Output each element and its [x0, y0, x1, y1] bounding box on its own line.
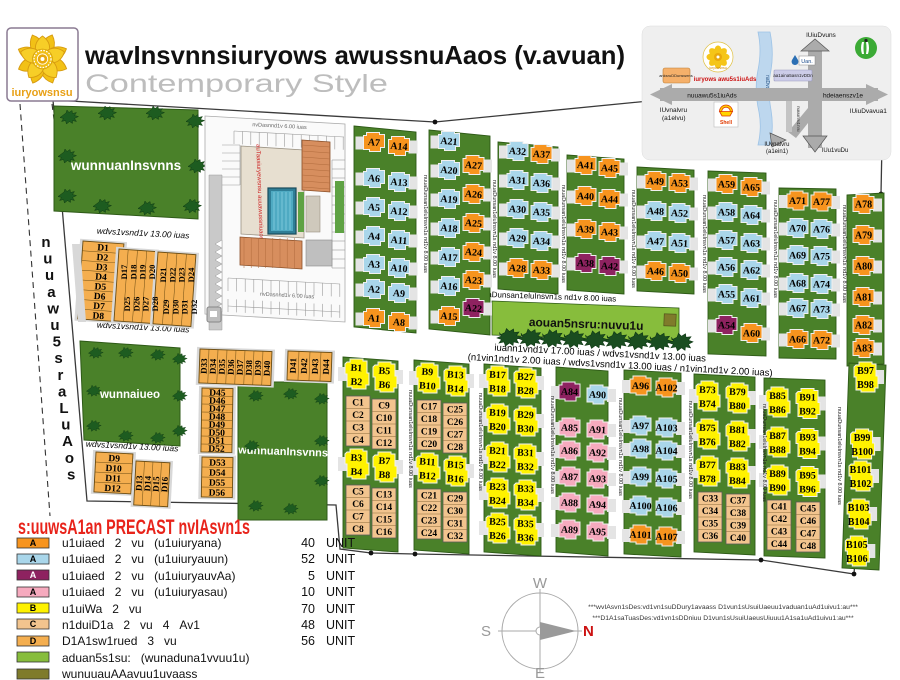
- svg-text:wunnaiueo: wunnaiueo: [99, 389, 160, 401]
- svg-text:u1uiaed 2 vu (u1uiuryauv: u1uiaed 2 vu (u1uiuryauvAa): [62, 569, 235, 583]
- svg-text:C6: C6: [352, 500, 364, 510]
- svg-text:D12: D12: [104, 484, 121, 495]
- svg-text:5: 5: [53, 334, 61, 351]
- svg-text:A103: A103: [655, 423, 678, 435]
- svg-text:B21: B21: [489, 446, 506, 458]
- svg-text:D54: D54: [209, 469, 226, 479]
- svg-text:A30: A30: [508, 204, 526, 216]
- svg-text:nuuaDunsan1eluInsvn1s nd1v 8.0: nuuaDunsan1eluInsvn1s nd1v 8.00 iuas: [477, 393, 483, 491]
- svg-text:C47: C47: [800, 530, 817, 540]
- svg-text:C25: C25: [447, 406, 464, 416]
- svg-text:A21: A21: [440, 136, 458, 148]
- svg-text:C2: C2: [352, 411, 364, 421]
- svg-text:52: 52: [301, 552, 315, 566]
- svg-text:C4: C4: [352, 436, 364, 446]
- svg-text:A85: A85: [561, 423, 579, 435]
- svg-text:N: N: [583, 623, 594, 640]
- svg-text:B31: B31: [517, 448, 534, 460]
- svg-text:C31: C31: [447, 520, 464, 530]
- svg-text:A10: A10: [390, 263, 408, 275]
- svg-text:B83: B83: [729, 462, 746, 474]
- svg-text:A8: A8: [392, 317, 405, 329]
- svg-text:UNIT: UNIT: [326, 634, 356, 648]
- svg-text:D42: D42: [299, 358, 310, 374]
- svg-text:A89: A89: [561, 525, 579, 537]
- svg-text:A13: A13: [390, 177, 408, 189]
- svg-text:A75: A75: [813, 251, 830, 262]
- svg-text:A49: A49: [647, 176, 665, 188]
- svg-text:B8: B8: [378, 470, 390, 482]
- svg-text:B1: B1: [350, 363, 362, 375]
- svg-text:B88: B88: [769, 445, 786, 456]
- svg-text:B9: B9: [421, 367, 433, 379]
- svg-text:A47: A47: [647, 236, 665, 248]
- svg-text:A68: A68: [789, 278, 806, 289]
- svg-text:B73: B73: [699, 385, 716, 397]
- svg-text:A87: A87: [561, 472, 579, 484]
- svg-text:B93: B93: [799, 432, 816, 443]
- svg-text:B97: B97: [857, 366, 874, 377]
- svg-text:B6: B6: [378, 380, 390, 392]
- svg-text:A4: A4: [367, 231, 380, 243]
- svg-text:C7: C7: [352, 513, 364, 523]
- svg-text:B4: B4: [350, 467, 362, 479]
- svg-text:B10: B10: [419, 380, 436, 392]
- svg-text:B25: B25: [489, 517, 506, 529]
- svg-text:B78: B78: [699, 474, 716, 486]
- svg-text:C44: C44: [771, 540, 788, 550]
- svg-text:W: W: [533, 575, 548, 592]
- svg-text:A2: A2: [367, 284, 380, 296]
- svg-text:A33: A33: [532, 265, 550, 277]
- svg-text:L: L: [59, 400, 68, 417]
- svg-text:D32: D32: [189, 300, 199, 315]
- svg-text:B22: B22: [489, 460, 506, 472]
- svg-text:B100: B100: [851, 447, 873, 458]
- svg-text:nuuaDunsan1eluInsvn1s nd1v 8.0: nuuaDunsan1eluInsvn1s nd1v 8.00 iuas: [836, 407, 842, 505]
- svg-text:UNIT: UNIT: [326, 585, 356, 599]
- svg-text:B35: B35: [517, 519, 534, 531]
- svg-text:B23: B23: [489, 482, 506, 494]
- svg-text:A9: A9: [392, 288, 405, 300]
- svg-text:B96: B96: [799, 484, 816, 495]
- svg-text:A22: A22: [464, 303, 482, 315]
- svg-text:B76: B76: [699, 437, 716, 449]
- svg-text:B36: B36: [517, 533, 534, 545]
- svg-text:70: 70: [301, 602, 315, 616]
- svg-text:u1uiaed 2 vu (u1uiuryasa: u1uiaed 2 vu (u1uiuryasau): [62, 585, 227, 599]
- svg-text:D43: D43: [310, 358, 321, 374]
- svg-text:B32: B32: [517, 462, 534, 474]
- svg-text:B94: B94: [799, 446, 816, 457]
- svg-text:C38: C38: [730, 509, 747, 519]
- svg-text:A69: A69: [789, 250, 806, 261]
- svg-text:B16: B16: [447, 473, 464, 485]
- svg-text:D1A1sw1rued 3 vu: D1A1sw1rued 3 vu: [62, 634, 177, 648]
- svg-text:C37: C37: [730, 497, 747, 507]
- svg-text:nuuaDunsan1eluInsvn1s nd1v 8.0: nuuaDunsan1eluInsvn1s nd1v 8.00 iuas: [422, 175, 428, 273]
- svg-text:C30: C30: [447, 507, 464, 517]
- svg-text:***D1A1saTuasDes:vd1vn1sDDniuu: ***D1A1saTuasDes:vd1vn1sDDniuu D1vun1sUs…: [592, 615, 854, 622]
- svg-text:C33: C33: [702, 495, 719, 505]
- svg-text:D40: D40: [262, 360, 273, 376]
- svg-text:A: A: [30, 538, 37, 548]
- svg-text:UNIT: UNIT: [326, 536, 356, 550]
- svg-text:D9: D9: [108, 454, 120, 465]
- svg-text:C39: C39: [730, 522, 747, 532]
- svg-text:UNIT: UNIT: [326, 618, 356, 632]
- svg-text:A74: A74: [813, 279, 830, 290]
- svg-text:A6: A6: [367, 173, 380, 185]
- svg-text:A17: A17: [440, 252, 458, 264]
- svg-text:u: u: [61, 417, 70, 434]
- svg-text:B82: B82: [729, 439, 746, 451]
- svg-text:E: E: [535, 665, 545, 680]
- svg-text:B2: B2: [350, 377, 362, 389]
- svg-text:A: A: [30, 587, 37, 597]
- svg-text:iuryowsnsu: iuryowsnsu: [11, 87, 72, 99]
- svg-text:A: A: [62, 433, 73, 450]
- svg-text:anksruDDunswens: anksruDDunswens: [659, 73, 693, 78]
- svg-text:A14: A14: [390, 141, 408, 153]
- svg-text:C43: C43: [771, 528, 788, 538]
- svg-text:A96: A96: [632, 381, 650, 393]
- svg-text:A77: A77: [813, 197, 830, 208]
- svg-text:nuuaDunsan1eluInsvn1s nd1v 8.0: nuuaDunsan1eluInsvn1s nd1v 8.00 iuas: [761, 404, 767, 502]
- svg-text:A99: A99: [632, 472, 650, 484]
- svg-text:A107: A107: [655, 532, 678, 544]
- svg-text:A105: A105: [655, 474, 678, 486]
- svg-text:A12: A12: [390, 206, 408, 218]
- svg-text:A: A: [30, 570, 37, 580]
- svg-text:nuuaDunsan1eluInsvn1s nd1v 8.0: nuuaDunsan1eluInsvn1s nd1v 8.00 iuas: [701, 195, 707, 293]
- svg-text:A15: A15: [440, 311, 458, 323]
- svg-text:B101: B101: [850, 465, 872, 476]
- svg-text:nuuaDunsan1eluInsvn1s nd1v 8.0: nuuaDunsan1eluInsvn1s nd1v 8.00 iuas: [772, 200, 778, 298]
- svg-text:A20: A20: [440, 165, 458, 177]
- svg-text:lUiuDvavua1: lUiuDvavua1: [850, 108, 887, 115]
- svg-text:D28: D28: [150, 297, 160, 312]
- svg-text:A26: A26: [464, 189, 482, 201]
- svg-text:Uan.: Uan.: [801, 59, 813, 65]
- svg-text:A98: A98: [632, 444, 650, 456]
- svg-text:A90: A90: [589, 390, 607, 402]
- svg-text:C1: C1: [352, 399, 364, 409]
- svg-text:C45: C45: [800, 505, 817, 515]
- svg-text:B81: B81: [729, 425, 746, 437]
- svg-text:B18: B18: [489, 384, 506, 396]
- svg-text:nuuaDunsan1eluInsvn1s nd1v 8.0: nuuaDunsan1eluInsvn1s nd1v 8.00 iuas: [560, 185, 566, 283]
- svg-text:u: u: [43, 251, 52, 268]
- svg-text:B19: B19: [489, 408, 506, 420]
- svg-text:nuuaDunsan1eluInsvn1s nd1v 8.0: nuuaDunsan1eluInsvn1s nd1v 8.00 iuas: [407, 390, 413, 488]
- svg-text:nuuaDunsan1eluInsvn1s nd1v 8.0: nuuaDunsan1eluInsvn1s nd1v 8.00 iuas: [841, 205, 847, 303]
- svg-text:C36: C36: [702, 532, 719, 542]
- svg-text:Shell: Shell: [720, 120, 733, 126]
- svg-text:B90: B90: [769, 483, 786, 494]
- svg-text:hdeiaenszv1e: hdeiaenszv1e: [823, 93, 863, 100]
- svg-text:s: s: [67, 466, 75, 483]
- svg-text:UNIT: UNIT: [326, 552, 356, 566]
- svg-text:A37: A37: [532, 149, 550, 161]
- svg-text:A27: A27: [464, 160, 482, 172]
- svg-text:C35: C35: [702, 520, 719, 530]
- svg-text:B11: B11: [419, 456, 436, 468]
- svg-text:A93: A93: [589, 474, 607, 486]
- svg-text:B79: B79: [729, 387, 746, 399]
- svg-text:nuuunru1nru: nuuunru1nru: [796, 106, 801, 132]
- svg-text:A95: A95: [589, 527, 607, 539]
- svg-text:B91: B91: [799, 392, 816, 403]
- svg-text:B104: B104: [848, 517, 870, 528]
- svg-text:5: 5: [308, 569, 315, 583]
- svg-text:A71: A71: [789, 196, 806, 207]
- svg-text:D44: D44: [321, 358, 332, 374]
- svg-text:48: 48: [301, 618, 315, 632]
- svg-text:A53: A53: [671, 178, 689, 190]
- svg-text:aduan5s1su: (wunaduna1vvuu1u: aduan5s1su: (wunaduna1vvuu1u): [62, 651, 249, 665]
- svg-text:A63: A63: [743, 238, 761, 250]
- svg-text:A36: A36: [532, 178, 550, 190]
- svg-text:D: D: [30, 636, 37, 646]
- svg-text:B87: B87: [769, 431, 786, 442]
- svg-text:B33: B33: [517, 484, 534, 496]
- svg-text:C14: C14: [376, 503, 393, 513]
- svg-text:A39: A39: [577, 224, 595, 236]
- svg-text:C28: C28: [447, 443, 464, 453]
- svg-text:A51: A51: [671, 238, 689, 250]
- svg-text:C12: C12: [376, 439, 393, 449]
- svg-text:B12: B12: [419, 470, 436, 482]
- svg-text:nuuaDunsan1eluInsvn1s nd1v 8.0: nuuaDunsan1eluInsvn1s nd1v 8.00 iuas: [491, 180, 497, 278]
- svg-text:C9: C9: [378, 402, 390, 412]
- svg-text:C22: C22: [421, 504, 438, 514]
- svg-text:B95: B95: [799, 470, 816, 481]
- svg-text:B: B: [30, 603, 37, 613]
- svg-text:C13: C13: [376, 491, 393, 501]
- svg-text:A106: A106: [655, 503, 678, 515]
- svg-text:B103: B103: [848, 503, 870, 514]
- svg-text:A40: A40: [577, 191, 595, 203]
- svg-text:C24: C24: [421, 529, 438, 539]
- svg-text:iuryowsnsu: iuryowsnsu: [709, 66, 727, 70]
- svg-text:A54: A54: [718, 320, 736, 332]
- svg-text:B27: B27: [517, 372, 534, 384]
- svg-text:A86: A86: [561, 446, 579, 458]
- svg-text:A42: A42: [601, 261, 619, 273]
- svg-text:B28: B28: [517, 386, 534, 398]
- svg-text:A24: A24: [464, 247, 482, 259]
- svg-text:C8: C8: [352, 525, 364, 535]
- svg-text:aa1aina5asn1vDDn: aa1aina5asn1vDDn: [773, 73, 813, 78]
- svg-text:D56: D56: [209, 489, 226, 499]
- svg-text:A46: A46: [647, 266, 665, 278]
- svg-text:C48: C48: [800, 542, 817, 552]
- svg-text:C16: C16: [376, 528, 393, 538]
- svg-text:A82: A82: [855, 321, 872, 332]
- svg-text:A50: A50: [671, 268, 689, 280]
- svg-text:A101: A101: [629, 530, 652, 542]
- svg-text:A76: A76: [813, 224, 830, 235]
- svg-text:C41: C41: [771, 503, 788, 513]
- svg-text:A67: A67: [789, 303, 806, 314]
- svg-text:10: 10: [301, 585, 315, 599]
- svg-text:u1uiaed 2 vu (u1uiuryauu: u1uiaed 2 vu (u1uiuryauun): [62, 552, 228, 566]
- svg-text:B24: B24: [489, 496, 506, 508]
- svg-text:B98: B98: [857, 380, 874, 391]
- svg-text:(a1ein1): (a1ein1): [766, 149, 788, 155]
- svg-text:nuuawu5s1iuAds: nuuawu5s1iuAds: [687, 93, 737, 100]
- svg-text:S: S: [481, 623, 491, 640]
- svg-text:A29: A29: [508, 233, 526, 245]
- svg-text:lUvnalvru: lUvnalvru: [660, 107, 687, 114]
- svg-text:D16: D16: [159, 476, 170, 493]
- svg-text:D41: D41: [288, 357, 299, 373]
- svg-text:A64: A64: [743, 210, 761, 222]
- svg-text:B92: B92: [799, 406, 816, 417]
- svg-text:A23: A23: [464, 275, 482, 287]
- svg-text:C3: C3: [352, 424, 364, 434]
- svg-text:r: r: [57, 367, 63, 384]
- svg-text:A59: A59: [718, 179, 736, 191]
- svg-text:D53: D53: [209, 459, 226, 469]
- svg-text:lUvnalvru: lUvnalvru: [764, 142, 789, 148]
- svg-text:A28: A28: [508, 263, 526, 275]
- svg-text:A80: A80: [855, 262, 872, 273]
- svg-text:A78: A78: [855, 200, 872, 211]
- svg-text:A65: A65: [743, 182, 761, 194]
- svg-text:B75: B75: [699, 423, 716, 435]
- svg-text:a: a: [47, 284, 56, 301]
- svg-text:B84: B84: [729, 476, 746, 488]
- svg-text:C29: C29: [447, 495, 464, 505]
- svg-text:A25: A25: [464, 218, 482, 230]
- svg-text:UNIT: UNIT: [326, 569, 356, 583]
- svg-text:D52: D52: [208, 445, 225, 455]
- svg-text:nuuaDunsan1eluInsvn1s nd1v 8.0: nuuaDunsan1eluInsvn1s nd1v 8.00 iuas: [630, 190, 636, 288]
- svg-text:A62: A62: [743, 265, 761, 277]
- svg-text:A92: A92: [589, 448, 607, 460]
- svg-text:n1duiD1a 2 vu 4 Av1: n1duiD1a 2 vu 4 Av1: [62, 618, 200, 632]
- svg-text:C11: C11: [376, 427, 392, 437]
- svg-text:iuryows awu5s1iuAds: iuryows awu5s1iuAds: [694, 77, 757, 83]
- svg-text:wavInsvnnsiuryows awussnuAaos: wavInsvnnsiuryows awussnuAaos (v.avuan): [84, 40, 625, 70]
- svg-text:A38: A38: [577, 258, 595, 270]
- svg-text:D20: D20: [147, 265, 157, 280]
- svg-text:D55: D55: [209, 479, 226, 489]
- svg-text:A84: A84: [561, 387, 579, 399]
- svg-text:u: u: [50, 317, 59, 334]
- svg-text:B26: B26: [489, 531, 506, 543]
- svg-text:B86: B86: [769, 405, 786, 416]
- svg-text:B13: B13: [447, 369, 464, 381]
- svg-text:A94: A94: [589, 500, 607, 512]
- svg-text:B80: B80: [729, 401, 746, 413]
- svg-text:C27: C27: [447, 431, 464, 441]
- svg-text:A45: A45: [601, 163, 619, 175]
- svg-text:C21: C21: [421, 492, 438, 502]
- svg-text:A3: A3: [367, 259, 380, 271]
- svg-text:B15: B15: [447, 459, 464, 471]
- svg-text:B99: B99: [854, 433, 871, 444]
- svg-text:C10: C10: [376, 414, 393, 424]
- svg-text:B29: B29: [517, 410, 534, 422]
- svg-text:A81: A81: [855, 293, 872, 304]
- svg-text:lUiuDvuns: lUiuDvuns: [806, 32, 836, 39]
- svg-text:A102: A102: [655, 383, 678, 395]
- svg-text:Contemporary Style: Contemporary Style: [85, 70, 388, 98]
- svg-text:C5: C5: [352, 488, 364, 498]
- svg-text:n: n: [41, 234, 50, 251]
- svg-text:nuuaDunsan1eluInsvn1s nd1v 8.0: nuuaDunsan1eluInsvn1s nd1v 8.00 iuas: [549, 396, 555, 494]
- svg-text:o: o: [65, 450, 74, 467]
- svg-text:u1uiWa 2 vu: u1uiWa 2 vu: [62, 602, 142, 616]
- svg-text:A83: A83: [855, 344, 872, 355]
- svg-text:A7: A7: [367, 137, 380, 149]
- svg-text:C34: C34: [702, 507, 719, 517]
- svg-text:A: A: [30, 554, 37, 564]
- svg-text:s: s: [54, 350, 62, 367]
- svg-text:w: w: [46, 300, 59, 317]
- svg-text:C19: C19: [421, 428, 438, 438]
- svg-text:wunnuanInsvnns: wunnuanInsvnns: [70, 158, 181, 173]
- svg-text:A1: A1: [367, 313, 380, 325]
- svg-text:wunuuauAAavuu1uvaass: wunuuauAAavuu1uvaass: [61, 667, 197, 680]
- svg-text:B5: B5: [378, 366, 390, 378]
- svg-text:C23: C23: [421, 517, 438, 527]
- svg-text:A73: A73: [813, 304, 830, 315]
- svg-text:A56: A56: [718, 262, 736, 274]
- svg-text:A88: A88: [561, 498, 579, 510]
- svg-text:A43: A43: [601, 227, 619, 239]
- svg-text:A18: A18: [440, 223, 458, 235]
- svg-text:A41: A41: [577, 160, 595, 172]
- svg-text:C18: C18: [421, 415, 438, 425]
- svg-text:56: 56: [301, 634, 315, 648]
- svg-text:D8: D8: [92, 311, 105, 322]
- svg-text:A16: A16: [440, 281, 458, 293]
- svg-text:A35: A35: [532, 207, 550, 219]
- svg-text:B14: B14: [447, 383, 464, 395]
- svg-text:C46: C46: [800, 517, 817, 527]
- svg-text:B85: B85: [769, 391, 786, 402]
- svg-text:A48: A48: [647, 206, 665, 218]
- svg-text:A72: A72: [813, 335, 830, 346]
- svg-text:B7: B7: [378, 456, 390, 468]
- svg-text:C15: C15: [376, 516, 393, 526]
- svg-text:A100: A100: [629, 501, 652, 513]
- svg-text:B105: B105: [846, 540, 868, 551]
- svg-text:A104: A104: [655, 446, 678, 458]
- svg-text:u1uiaed 2 vu (u1uiuryana: u1uiaed 2 vu (u1uiuryana): [62, 536, 221, 550]
- svg-text:UNIT: UNIT: [326, 602, 356, 616]
- svg-text:C26: C26: [447, 418, 464, 428]
- svg-text:A70: A70: [789, 223, 806, 234]
- svg-text:u: u: [45, 267, 54, 284]
- svg-text:A55: A55: [718, 289, 736, 301]
- svg-text:A19: A19: [440, 194, 458, 206]
- svg-text:B77: B77: [699, 460, 716, 472]
- svg-text:***wvIAsvn1sDes:vd1vn1suDDury1: ***wvIAsvn1sDes:vd1vn1suDDury1avaass D1v…: [588, 604, 858, 611]
- svg-text:D24: D24: [186, 267, 196, 282]
- svg-text:B30: B30: [517, 424, 534, 436]
- svg-text:C17: C17: [421, 403, 438, 413]
- svg-text:A57: A57: [718, 235, 736, 247]
- svg-text:40: 40: [301, 536, 315, 550]
- svg-text:A58: A58: [718, 207, 736, 219]
- svg-text:C32: C32: [447, 532, 464, 542]
- svg-text:B74: B74: [699, 399, 716, 411]
